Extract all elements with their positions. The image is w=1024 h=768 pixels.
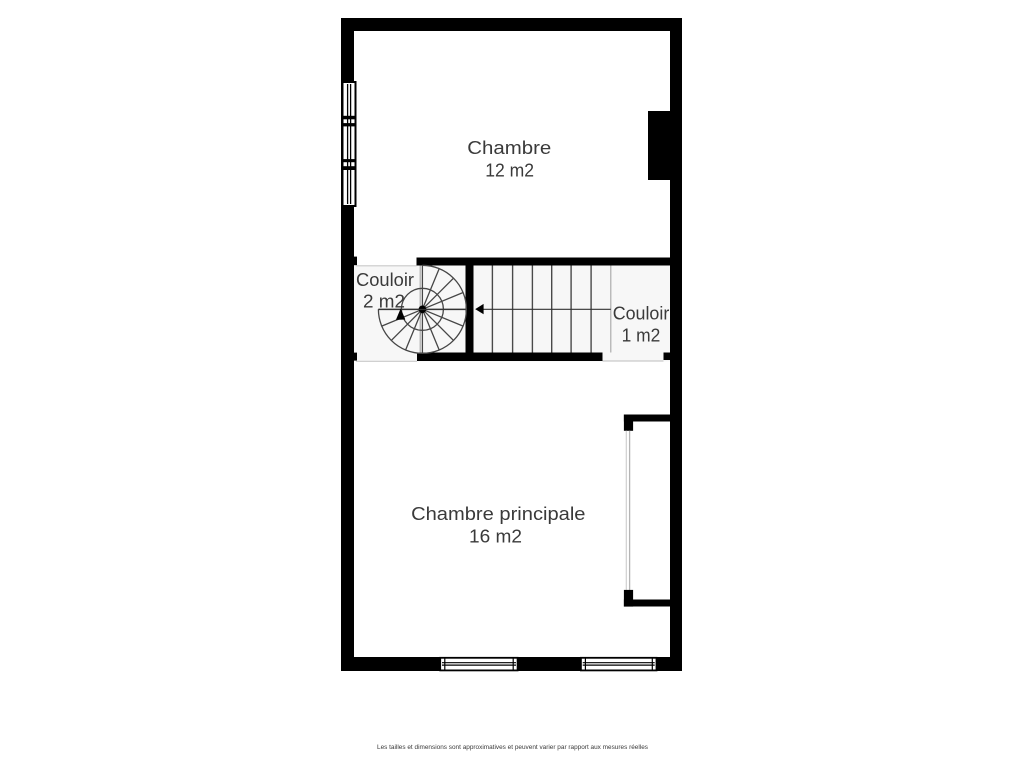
svg-text:Chambre principale: Chambre principale [411, 504, 585, 524]
svg-text:Chambre: Chambre [467, 138, 551, 158]
svg-text:2 m2: 2 m2 [363, 292, 405, 312]
svg-text:Couloir: Couloir [613, 303, 670, 323]
svg-text:16 m2: 16 m2 [469, 527, 522, 547]
svg-text:12 m2: 12 m2 [485, 160, 534, 180]
svg-text:Couloir: Couloir [356, 270, 414, 290]
svg-text:Les tailles et dimensions sont: Les tailles et dimensions sont approxima… [377, 744, 649, 751]
svg-text:1 m2: 1 m2 [622, 325, 661, 345]
